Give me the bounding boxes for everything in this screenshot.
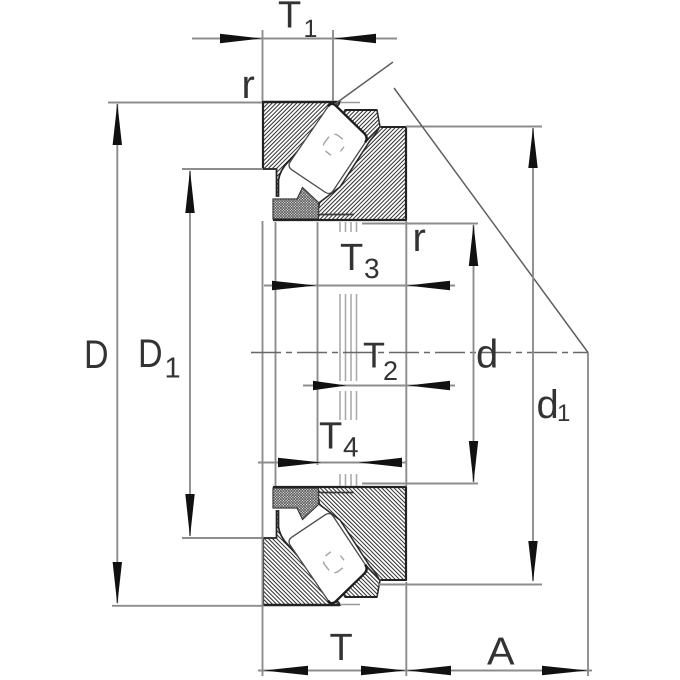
svg-text:D: D bbox=[84, 333, 109, 377]
svg-text:A: A bbox=[487, 631, 515, 674]
svg-text:1: 1 bbox=[557, 400, 570, 427]
svg-text:1: 1 bbox=[304, 15, 318, 43]
svg-text:d: d bbox=[476, 333, 498, 377]
svg-text:r: r bbox=[242, 63, 255, 107]
svg-text:d: d bbox=[537, 383, 559, 427]
svg-text:T: T bbox=[330, 627, 353, 669]
svg-text:2: 2 bbox=[383, 356, 398, 386]
svg-text:4: 4 bbox=[343, 432, 359, 463]
svg-text:T: T bbox=[278, 0, 301, 37]
svg-text:T: T bbox=[340, 237, 363, 279]
svg-text:D: D bbox=[138, 332, 163, 376]
svg-text:3: 3 bbox=[364, 253, 380, 284]
svg-text:T: T bbox=[319, 416, 342, 458]
svg-text:1: 1 bbox=[165, 353, 181, 385]
svg-text:r: r bbox=[413, 216, 426, 260]
svg-text:T: T bbox=[363, 335, 385, 376]
